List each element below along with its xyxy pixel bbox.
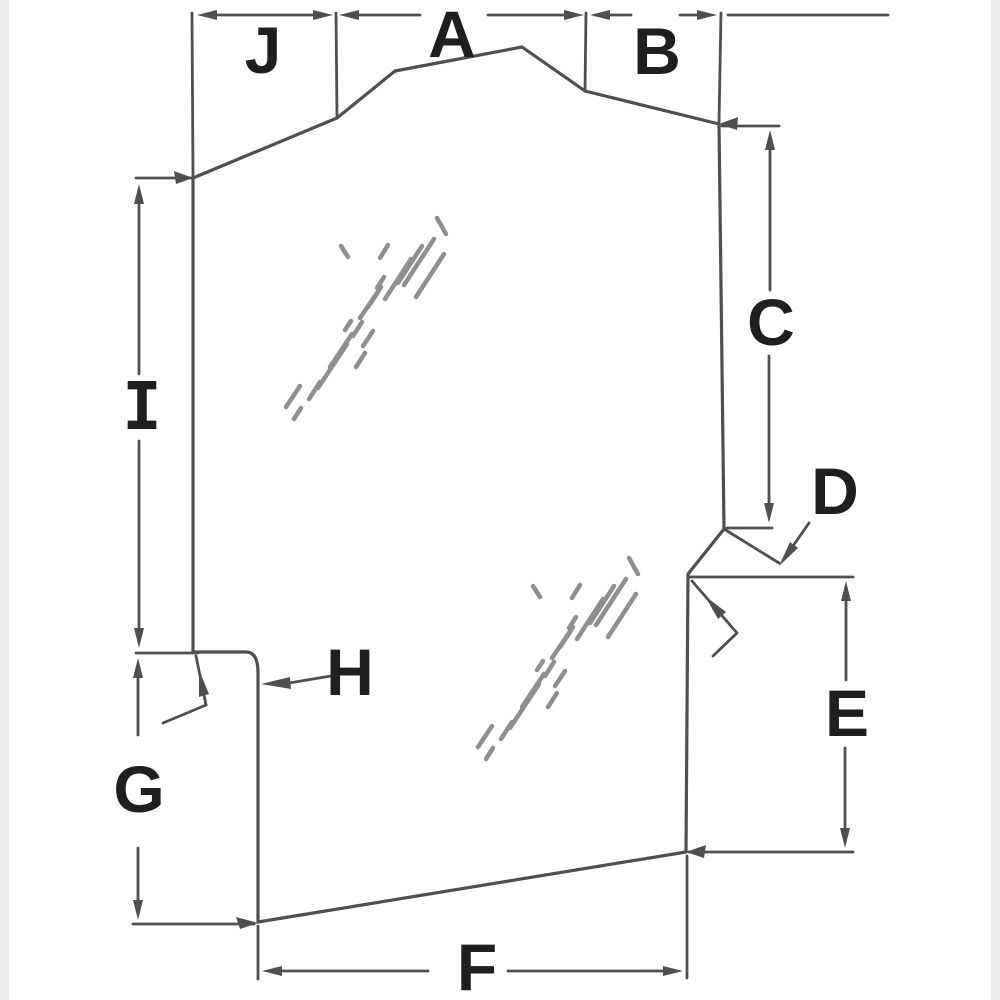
- dimension-label-f: F: [457, 934, 497, 1000]
- h-leader-arrowhead: [261, 677, 291, 689]
- arrow-i-bottom: [134, 628, 144, 648]
- dimension-label-i: I: [122, 374, 162, 440]
- glass-outline-path: [193, 47, 724, 922]
- arrow-a-right: [564, 10, 584, 20]
- ext-top-left: [192, 13, 193, 177]
- dimension-label-d: D: [811, 458, 859, 524]
- dimension-label-j: J: [245, 17, 282, 83]
- dimension-diagram: A B C D E F G H I J: [0, 0, 1000, 1000]
- dimension-label-b: B: [633, 18, 681, 84]
- arrow-g-bottom: [133, 900, 143, 920]
- arrow-c-top: [765, 130, 775, 150]
- hatch-lower: [478, 558, 638, 759]
- arrow-b-right: [697, 10, 717, 20]
- arrow-b-left: [590, 10, 610, 20]
- h-leader-shaft: [289, 676, 331, 683]
- hatch-upper: [286, 218, 446, 419]
- dimension-label-e: E: [825, 680, 869, 746]
- dimension-lines: [138, 15, 888, 971]
- corner-marker-bottom-left: [236, 917, 258, 929]
- ext-top-right: [719, 13, 721, 123]
- arrow-e-top: [841, 581, 851, 601]
- arrow-g-top: [133, 658, 143, 678]
- arrow-i-top: [134, 184, 144, 204]
- corner-marker-top-right: [719, 117, 738, 130]
- dimension-arrowheads: [133, 10, 851, 976]
- dimension-label-g: G: [113, 756, 164, 822]
- g-corner-arrowhead: [199, 670, 209, 697]
- arrow-j-left: [197, 10, 217, 20]
- corner-marker-bottom-right: [686, 845, 706, 858]
- arrow-f-left: [262, 966, 282, 976]
- arrow-a-left: [339, 10, 359, 20]
- notch-edge-line: [724, 529, 779, 563]
- dimension-label-h: H: [326, 639, 374, 705]
- d-leader-arrowhead: [779, 542, 798, 566]
- ext-j-a: [336, 13, 337, 117]
- ext-a-b: [585, 13, 586, 90]
- arrow-j-right: [313, 10, 333, 20]
- corner-marker-top-left: [174, 171, 193, 184]
- glass-outline: [193, 47, 724, 922]
- dimension-label-a: A: [428, 1, 476, 67]
- g-corner-leader-tail: [163, 705, 206, 723]
- arrow-c-bottom: [764, 503, 774, 523]
- dimension-label-c: C: [747, 289, 795, 355]
- leader-arrows: [163, 523, 809, 723]
- arrow-e-bottom: [840, 828, 850, 848]
- arrow-f-right: [663, 966, 683, 976]
- e-corner-leader-tail: [713, 633, 737, 656]
